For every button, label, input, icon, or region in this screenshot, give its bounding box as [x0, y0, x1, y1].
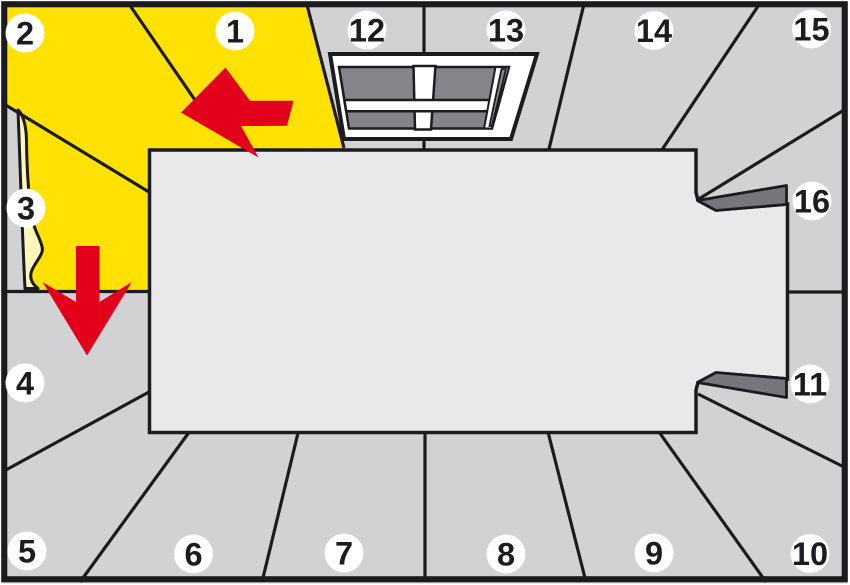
svg-text:16: 16 — [794, 184, 830, 220]
svg-text:7: 7 — [335, 536, 353, 572]
svg-text:12: 12 — [349, 13, 385, 49]
svg-text:5: 5 — [18, 534, 36, 570]
svg-text:10: 10 — [792, 536, 828, 572]
svg-text:15: 15 — [793, 12, 829, 48]
svg-text:4: 4 — [16, 366, 34, 402]
svg-text:8: 8 — [497, 537, 515, 573]
svg-text:9: 9 — [645, 536, 663, 572]
svg-text:2: 2 — [16, 16, 34, 52]
svg-text:11: 11 — [793, 367, 827, 403]
svg-text:6: 6 — [184, 537, 202, 573]
svg-text:13: 13 — [488, 13, 524, 49]
svg-text:3: 3 — [17, 191, 35, 227]
svg-text:14: 14 — [636, 13, 672, 49]
svg-text:1: 1 — [226, 14, 244, 50]
